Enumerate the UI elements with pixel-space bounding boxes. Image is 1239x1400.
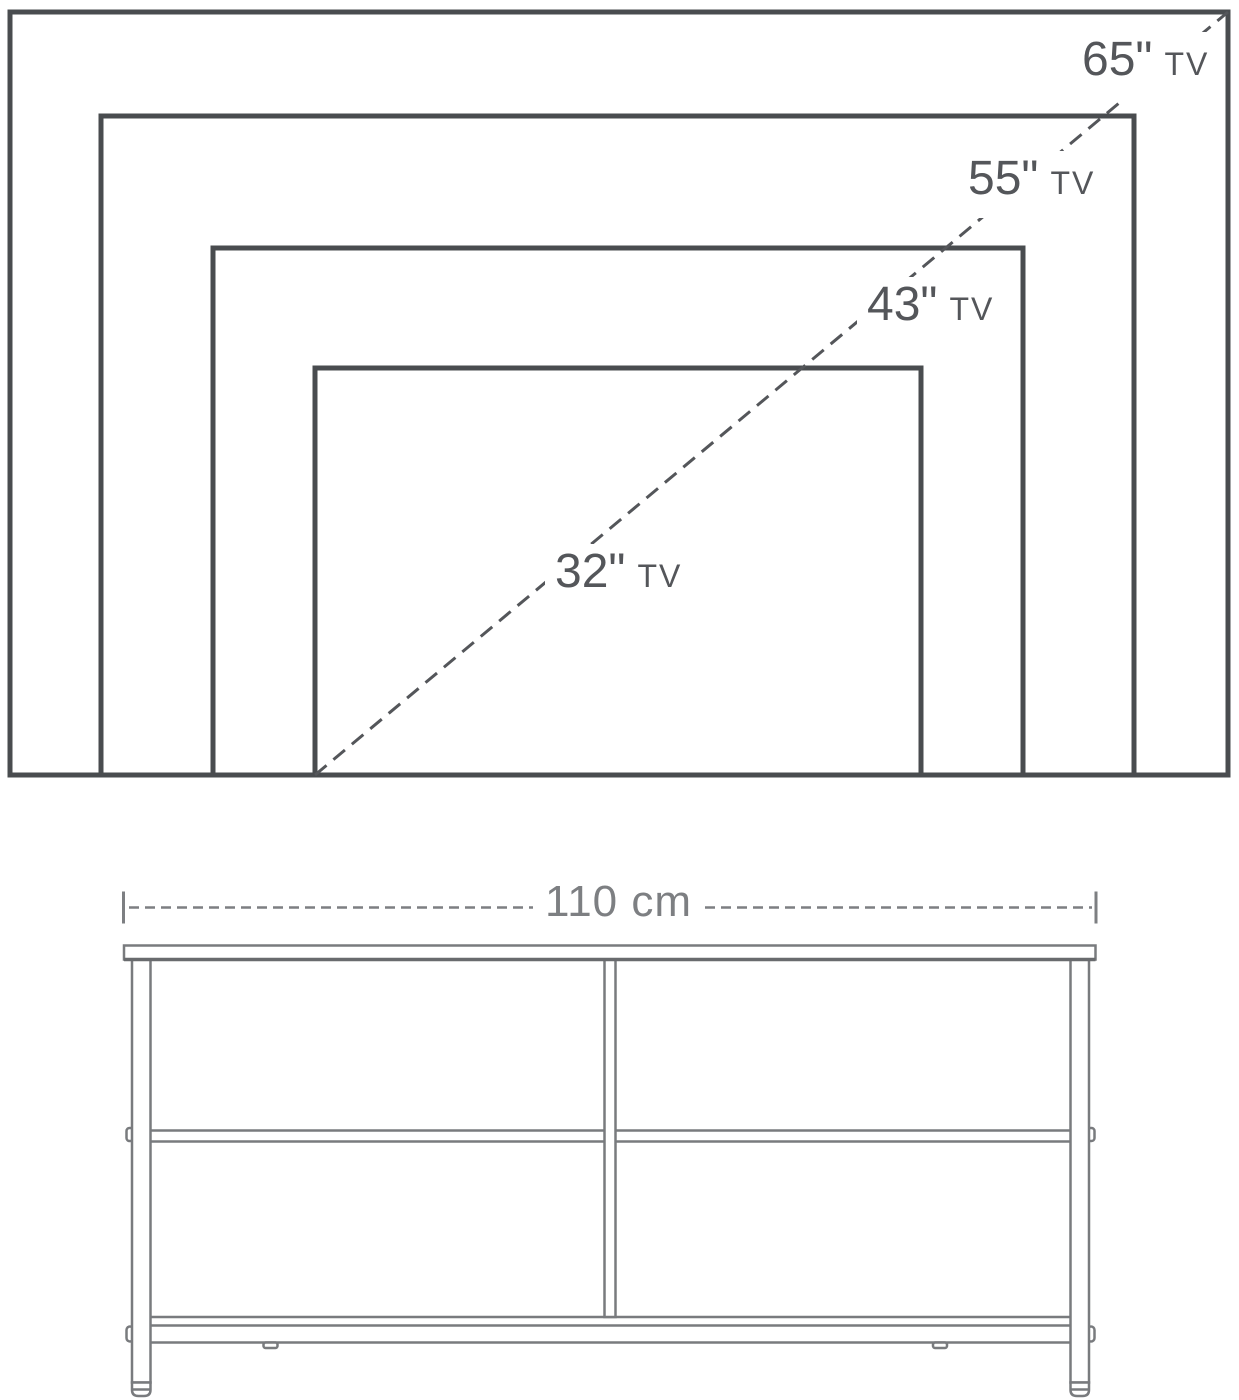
tv-label-32-size: 32": [555, 545, 625, 598]
tv-outline-65: [10, 12, 1228, 775]
stand-right-leg: [1071, 960, 1090, 1383]
tv-label-32-unit: TV: [637, 558, 682, 594]
stand-center-glide-right: [933, 1343, 947, 1349]
tv-label-65-size: 65": [1082, 33, 1152, 86]
tv-label-43: 43"TV: [857, 277, 1004, 344]
stand-top-panel: [124, 946, 1096, 960]
tv-label-55: 55"TV: [958, 151, 1105, 218]
tv-diagonal-dashed-line: [315, 12, 1228, 775]
tv-label-65: 65"TV: [1072, 32, 1219, 99]
tv-label-55-size: 55": [968, 152, 1038, 205]
tv-stand-drawing: [124, 946, 1096, 1397]
stand-center-glide-left: [264, 1343, 278, 1349]
stand-left-leg: [132, 960, 151, 1383]
stand-width-label: 110 cm: [533, 874, 704, 930]
tv-label-55-unit: TV: [1050, 165, 1095, 201]
stand-center-divider: [605, 960, 616, 1318]
tv-size-comparison: [10, 12, 1228, 775]
tv-label-43-size: 43": [867, 278, 937, 331]
stand-bottom-shelf: [134, 1317, 1088, 1343]
tv-label-65-unit: TV: [1164, 46, 1209, 82]
tv-label-43-unit: TV: [949, 291, 994, 327]
product-dimension-diagram: 65"TV 55"TV 43"TV 32"TV 110 cm: [0, 0, 1239, 1400]
tv-label-32: 32"TV: [545, 544, 692, 611]
